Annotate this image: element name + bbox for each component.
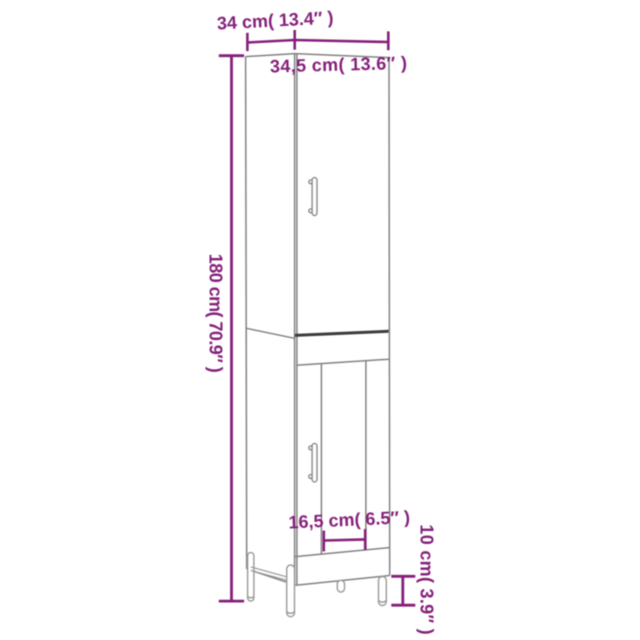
svg-text:10 cm( 3.9″ ): 10 cm( 3.9″ ) xyxy=(417,524,437,635)
svg-text:34 cm( 13.4″ ): 34 cm( 13.4″ ) xyxy=(216,7,334,33)
svg-text:180 cm( 70.9″ ): 180 cm( 70.9″ ) xyxy=(206,254,226,373)
svg-text:16,5 cm( 6.5″ ): 16,5 cm( 6.5″ ) xyxy=(288,507,410,532)
svg-text:34,5 cm( 13.6″ ): 34,5 cm( 13.6″ ) xyxy=(270,53,408,77)
